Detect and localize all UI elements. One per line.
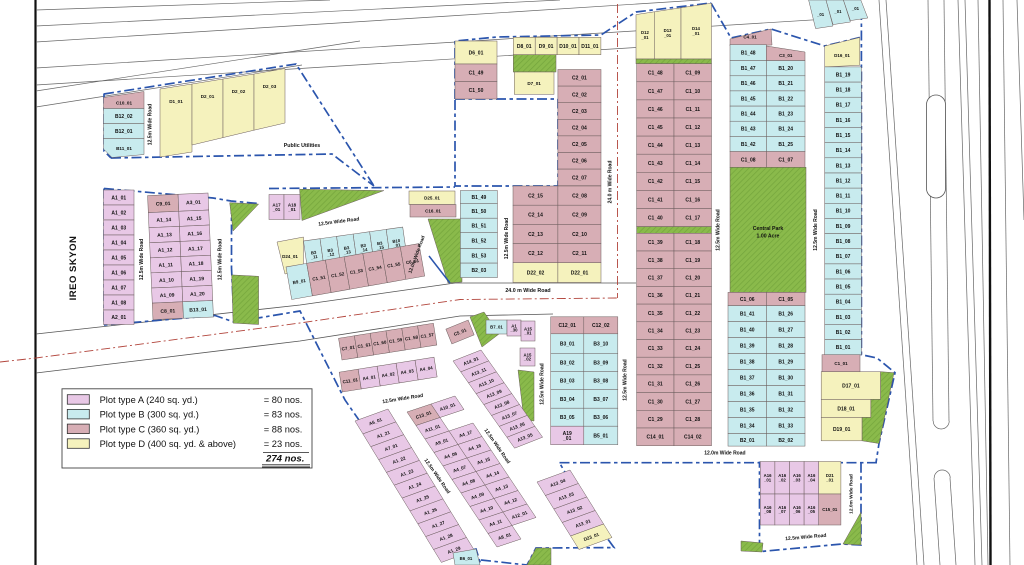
svg-text:C2_02: C2_02: [572, 92, 587, 98]
svg-text:C10_01: C10_01: [116, 101, 133, 106]
svg-text:B3_04: B3_04: [560, 397, 575, 403]
svg-text:12.5m Wide Road: 12.5m Wide Road: [623, 359, 629, 400]
svg-text:C1_41: C1_41: [648, 197, 663, 203]
svg-text:D17_01: D17_01: [842, 383, 860, 389]
svg-text:B3_01: B3_01: [560, 341, 575, 347]
svg-text:A1_02: A1_02: [111, 210, 126, 216]
svg-text:B3_05: B3_05: [560, 415, 575, 421]
svg-text:C1_31: C1_31: [648, 382, 663, 388]
svg-text:B1_46: B1_46: [741, 81, 756, 87]
svg-text:B2_01: B2_01: [740, 438, 755, 444]
svg-text:B1_38: B1_38: [740, 360, 755, 366]
svg-text:C1_24: C1_24: [685, 346, 700, 352]
svg-text:A3_01: A3_01: [186, 200, 201, 207]
svg-text:C16_01: C16_01: [425, 209, 441, 214]
svg-text:B1_29: B1_29: [778, 360, 793, 366]
svg-text:_06: _06: [792, 509, 801, 514]
svg-text:12.0m Wide Road: 12.0m Wide Road: [848, 474, 854, 514]
svg-text:_01: _01: [640, 35, 649, 40]
svg-text:C1_05: C1_05: [778, 297, 793, 303]
svg-text:B1_36: B1_36: [740, 392, 755, 398]
svg-text:C1_06: C1_06: [740, 297, 755, 303]
svg-text:A1_04: A1_04: [111, 240, 126, 246]
svg-text:C1_28: C1_28: [685, 417, 700, 423]
svg-text:C1_29: C1_29: [648, 417, 663, 423]
svg-text:B12_01: B12_01: [115, 129, 133, 135]
svg-text:A1_15: A1_15: [187, 216, 202, 223]
svg-text:12.5m Wide Road: 12.5m Wide Road: [504, 218, 510, 259]
svg-text:C1_49: C1_49: [469, 71, 484, 77]
svg-text:B1_01: B1_01: [836, 345, 851, 351]
svg-text:C4_01: C4_01: [743, 35, 757, 40]
svg-text:_02: _02: [523, 357, 532, 362]
svg-text:_01: _01: [523, 331, 532, 336]
svg-text:_04: _04: [807, 477, 816, 482]
svg-text:D16_01: D16_01: [834, 53, 850, 58]
svg-text:A1_17: A1_17: [188, 246, 203, 253]
svg-text:D18_01: D18_01: [837, 406, 855, 412]
svg-text:B1_48: B1_48: [741, 51, 756, 57]
svg-text:B1_45: B1_45: [741, 96, 756, 102]
svg-text:C14_02: C14_02: [684, 435, 702, 441]
svg-text:C2_13: C2_13: [528, 232, 543, 238]
svg-text:C1_36: C1_36: [648, 293, 663, 299]
svg-text:B1_37: B1_37: [740, 376, 755, 382]
svg-text:C12_01: C12_01: [558, 323, 576, 329]
svg-text:B1_26: B1_26: [778, 312, 793, 318]
svg-text:C2_10: C2_10: [572, 232, 587, 238]
svg-text:C1_11: C1_11: [686, 107, 701, 113]
svg-text:C2_12: C2_12: [528, 251, 543, 257]
svg-text:B1_51: B1_51: [472, 223, 487, 229]
svg-text:D25_01: D25_01: [424, 196, 440, 201]
svg-text:C2_04: C2_04: [572, 126, 587, 132]
svg-text:C1_25: C1_25: [685, 364, 700, 370]
svg-text:B1_43: B1_43: [741, 127, 756, 133]
svg-text:C1_39: C1_39: [648, 240, 663, 246]
svg-text:C1_01: C1_01: [834, 361, 848, 366]
svg-text:D7_01: D7_01: [527, 81, 541, 86]
svg-text:C2_14: C2_14: [528, 213, 543, 219]
svg-text:C1_50: C1_50: [469, 88, 484, 94]
svg-text:B1_40: B1_40: [740, 328, 755, 334]
svg-text:C1_18: C1_18: [685, 240, 700, 246]
svg-text:B13_01: B13_01: [189, 307, 207, 314]
svg-text:C14_01: C14_01: [647, 435, 665, 441]
svg-text:B1_50: B1_50: [472, 209, 487, 215]
svg-text:C2_01: C2_01: [572, 76, 587, 82]
svg-text:D6_01: D6_01: [469, 50, 484, 56]
svg-text:Central Park: Central Park: [753, 226, 784, 232]
svg-text:B1_22: B1_22: [778, 96, 793, 102]
svg-text:B3_09: B3_09: [593, 360, 608, 366]
svg-text:C1_46: C1_46: [648, 107, 663, 113]
svg-text:B3_10: B3_10: [593, 341, 608, 347]
svg-text:C1_26: C1_26: [685, 382, 700, 388]
svg-text:_05: _05: [807, 509, 816, 514]
svg-text:C1_48: C1_48: [648, 71, 663, 77]
svg-text:B12_02: B12_02: [115, 114, 133, 120]
svg-text:B1_21: B1_21: [778, 81, 793, 87]
svg-text:C2_07: C2_07: [572, 175, 587, 181]
svg-text:C1_20: C1_20: [685, 275, 700, 281]
svg-text:C1_07: C1_07: [778, 157, 793, 163]
svg-text:A1_19: A1_19: [189, 276, 204, 283]
svg-text:C1_34: C1_34: [648, 329, 663, 335]
svg-text:B1_12: B1_12: [836, 178, 851, 184]
svg-text:= 83 nos.: = 83 nos.: [264, 410, 303, 420]
svg-text:D22_01: D22_01: [571, 271, 589, 277]
svg-text:C1_14: C1_14: [685, 161, 700, 167]
svg-text:C1_15: C1_15: [685, 179, 700, 185]
svg-text:C2_09: C2_09: [572, 213, 587, 219]
svg-text:B3_07: B3_07: [593, 397, 608, 403]
svg-text:12.5m Wide Road: 12.5m Wide Road: [813, 209, 819, 250]
svg-text:D9_01: D9_01: [539, 44, 554, 50]
svg-text:A1_14: A1_14: [156, 217, 171, 224]
svg-text:B2_02: B2_02: [778, 438, 793, 444]
svg-text:C1_13: C1_13: [685, 143, 700, 149]
svg-text:B1_16: B1_16: [836, 118, 851, 124]
svg-text:C1_12: C1_12: [685, 125, 700, 131]
svg-text:B1_28: B1_28: [778, 344, 793, 350]
svg-text:B1_10: B1_10: [836, 209, 851, 215]
svg-text:= 80 nos.: = 80 nos.: [264, 395, 303, 405]
svg-text:B1_53: B1_53: [472, 254, 487, 260]
svg-text:B1_09: B1_09: [836, 224, 851, 230]
svg-text:B3_08: B3_08: [593, 379, 608, 385]
svg-text:C1_32: C1_32: [648, 364, 663, 370]
svg-text:B1_17: B1_17: [836, 103, 851, 109]
svg-text:B1_08: B1_08: [836, 239, 851, 245]
svg-text:274 nos.: 274 nos.: [265, 454, 304, 465]
svg-text:C1_42: C1_42: [648, 179, 663, 185]
svg-text:_30: _30: [509, 328, 518, 333]
svg-text:B1_15: B1_15: [836, 133, 851, 139]
svg-text:_01: _01: [272, 207, 281, 212]
svg-text:D2_03: D2_03: [263, 84, 277, 89]
svg-text:D19_01: D19_01: [833, 427, 851, 433]
svg-text:C1_21: C1_21: [685, 293, 700, 299]
svg-text:_01: _01: [663, 33, 672, 38]
svg-text:Plot type D (400 sq. yd. & abo: Plot type D (400 sq. yd. & above): [100, 439, 236, 449]
svg-text:B1_24: B1_24: [778, 127, 793, 133]
svg-text:B1_02: B1_02: [836, 330, 851, 336]
svg-text:1.00 Acre: 1.00 Acre: [757, 234, 780, 240]
svg-text:B1_14: B1_14: [836, 148, 851, 154]
svg-text:24.0 m Wide Road: 24.0 m Wide Road: [505, 288, 550, 294]
svg-text:B1_06: B1_06: [836, 269, 851, 275]
svg-text:B5_01: B5_01: [593, 433, 608, 439]
svg-text:C1_16: C1_16: [685, 197, 700, 203]
svg-text:_08: _08: [763, 509, 772, 514]
svg-text:_02: _02: [778, 477, 787, 482]
svg-text:C1_23: C1_23: [685, 329, 700, 335]
svg-text:_01: _01: [833, 9, 842, 14]
svg-text:B1_49: B1_49: [472, 195, 487, 201]
svg-text:_01: _01: [825, 477, 834, 482]
svg-text:IREO SKYON: IREO SKYON: [68, 236, 79, 301]
svg-text:C1_08: C1_08: [741, 157, 756, 163]
svg-text:12.5m Wide Road: 12.5m Wide Road: [139, 239, 145, 280]
svg-text:C12_02: C12_02: [592, 323, 610, 329]
svg-text:C15_01: C15_01: [822, 507, 838, 512]
svg-text:C1_27: C1_27: [685, 399, 700, 405]
svg-text:C1_37: C1_37: [648, 275, 663, 281]
svg-text:A1_10: A1_10: [159, 277, 174, 284]
svg-text:B2_03: B2_03: [472, 268, 487, 274]
svg-text:A1_18: A1_18: [189, 261, 204, 268]
svg-text:_03: _03: [792, 477, 801, 482]
svg-text:B1_20: B1_20: [778, 66, 793, 72]
svg-text:B6_01: B6_01: [460, 556, 473, 561]
svg-text:_01: _01: [562, 436, 572, 442]
svg-text:B1_30: B1_30: [778, 376, 793, 382]
svg-text:B7_01: B7_01: [490, 325, 503, 330]
svg-text:A1_13: A1_13: [157, 232, 172, 239]
svg-text:Plot type C (360 sq. yd.): Plot type C (360 sq. yd.): [100, 424, 200, 434]
svg-text:A2_01: A2_01: [111, 315, 126, 321]
svg-text:B1_41: B1_41: [740, 312, 755, 318]
svg-text:Public Utilities: Public Utilities: [284, 143, 321, 149]
svg-text:C1_30: C1_30: [648, 399, 663, 405]
svg-text:B3_06: B3_06: [593, 415, 608, 421]
svg-text:C1_10: C1_10: [685, 89, 700, 95]
svg-text:B1_04: B1_04: [836, 300, 851, 306]
svg-text:B11_01: B11_01: [116, 146, 132, 151]
svg-text:C2_11: C2_11: [572, 251, 587, 257]
svg-text:B1_23: B1_23: [778, 112, 793, 118]
svg-text:12.5m Wide Road: 12.5m Wide Road: [716, 209, 722, 250]
svg-text:A1_20: A1_20: [190, 291, 205, 298]
svg-text:B1_11: B1_11: [836, 194, 851, 200]
svg-text:B1_07: B1_07: [836, 254, 851, 260]
svg-text:= 88 nos.: = 88 nos.: [264, 424, 303, 434]
svg-text:C1_22: C1_22: [685, 311, 700, 317]
svg-text:_01: _01: [763, 477, 772, 482]
svg-text:A1_08: A1_08: [111, 300, 126, 306]
svg-text:C2_06: C2_06: [572, 159, 587, 165]
svg-text:B1_05: B1_05: [836, 285, 851, 291]
svg-text:Plot type A (240 sq. yd.): Plot type A (240 sq. yd.): [100, 395, 198, 405]
svg-text:A1_12: A1_12: [158, 247, 173, 254]
svg-text:_01: _01: [816, 12, 825, 17]
svg-text:B1_52: B1_52: [472, 239, 487, 245]
svg-text:B1_18: B1_18: [836, 88, 851, 94]
svg-text:12.5m Wide Road: 12.5m Wide Road: [540, 363, 546, 404]
svg-text:12.0m Wide Road: 12.0m Wide Road: [704, 451, 745, 457]
svg-text:C1_35: C1_35: [648, 311, 663, 317]
svg-text:B1_19: B1_19: [836, 72, 851, 78]
svg-text:_01: _01: [851, 6, 860, 11]
svg-text:B1_35: B1_35: [740, 408, 755, 414]
svg-text:= 23 nos.: = 23 nos.: [264, 439, 303, 449]
svg-text:D1_01: D1_01: [169, 99, 183, 104]
svg-text:A1_01: A1_01: [111, 195, 126, 201]
svg-text:C9_01: C9_01: [156, 201, 171, 208]
svg-text:B1_42: B1_42: [741, 142, 756, 148]
svg-text:B3_02: B3_02: [560, 360, 575, 366]
svg-text:C8_01: C8_01: [160, 308, 175, 315]
svg-text:D24_01: D24_01: [282, 254, 298, 259]
svg-text:C1_09: C1_09: [685, 71, 700, 77]
svg-text:C3_01: C3_01: [779, 53, 793, 58]
svg-text:B1_25: B1_25: [778, 142, 793, 148]
svg-text:Plot type B (300 sq. yd.): Plot type B (300 sq. yd.): [100, 410, 199, 420]
svg-text:C1_19: C1_19: [685, 258, 700, 264]
svg-text:B1_47: B1_47: [741, 66, 756, 72]
svg-text:B1_39: B1_39: [740, 344, 755, 350]
svg-text:D10_01: D10_01: [559, 44, 577, 50]
svg-text:A1_07: A1_07: [111, 285, 126, 291]
svg-text:A1_11: A1_11: [158, 262, 173, 269]
svg-text:C1_38: C1_38: [648, 258, 663, 264]
svg-text:D2_01: D2_01: [201, 94, 215, 99]
svg-text:_07: _07: [778, 509, 787, 514]
svg-text:A1_16: A1_16: [187, 231, 202, 238]
svg-text:24.0 m Wide Road: 24.0 m Wide Road: [608, 161, 614, 204]
svg-text:B1_33: B1_33: [778, 424, 793, 430]
svg-text:D22_02: D22_02: [527, 271, 545, 277]
svg-text:B1_13: B1_13: [836, 163, 851, 169]
svg-text:A1_09: A1_09: [160, 293, 175, 300]
svg-text:B1_27: B1_27: [778, 328, 793, 334]
svg-text:C1_44: C1_44: [648, 143, 663, 149]
svg-text:C1_33: C1_33: [648, 346, 663, 352]
svg-text:C1_47: C1_47: [648, 89, 663, 95]
svg-text:12.5m Wide Road: 12.5m Wide Road: [148, 104, 154, 145]
svg-text:B1_03: B1_03: [836, 315, 851, 321]
svg-text:C2_05: C2_05: [572, 142, 587, 148]
svg-text:C2_08: C2_08: [572, 194, 587, 200]
svg-text:C1_45: C1_45: [648, 125, 663, 131]
svg-text:A1_03: A1_03: [111, 225, 126, 231]
svg-text:_01: _01: [287, 207, 296, 212]
svg-text:D2_02: D2_02: [232, 89, 246, 94]
svg-text:C2_03: C2_03: [572, 109, 587, 115]
svg-text:B1_32: B1_32: [778, 408, 793, 414]
svg-text:C2_15: C2_15: [528, 194, 543, 200]
svg-text:C1_43: C1_43: [648, 161, 663, 167]
svg-text:12.5m Wide Road: 12.5m Wide Road: [218, 239, 224, 280]
svg-text:A1_06: A1_06: [111, 270, 126, 276]
svg-text:B1_34: B1_34: [740, 424, 755, 430]
svg-text:B1_31: B1_31: [778, 392, 793, 398]
svg-text:C1_40: C1_40: [648, 215, 663, 221]
svg-text:_01: _01: [691, 31, 700, 36]
svg-text:B3_03: B3_03: [560, 379, 575, 385]
svg-text:B1_44: B1_44: [741, 112, 756, 118]
svg-text:D8_01: D8_01: [517, 44, 532, 50]
svg-text:D11_01: D11_01: [581, 44, 598, 50]
svg-text:C1_17: C1_17: [685, 215, 700, 221]
svg-text:A1_05: A1_05: [111, 255, 126, 261]
